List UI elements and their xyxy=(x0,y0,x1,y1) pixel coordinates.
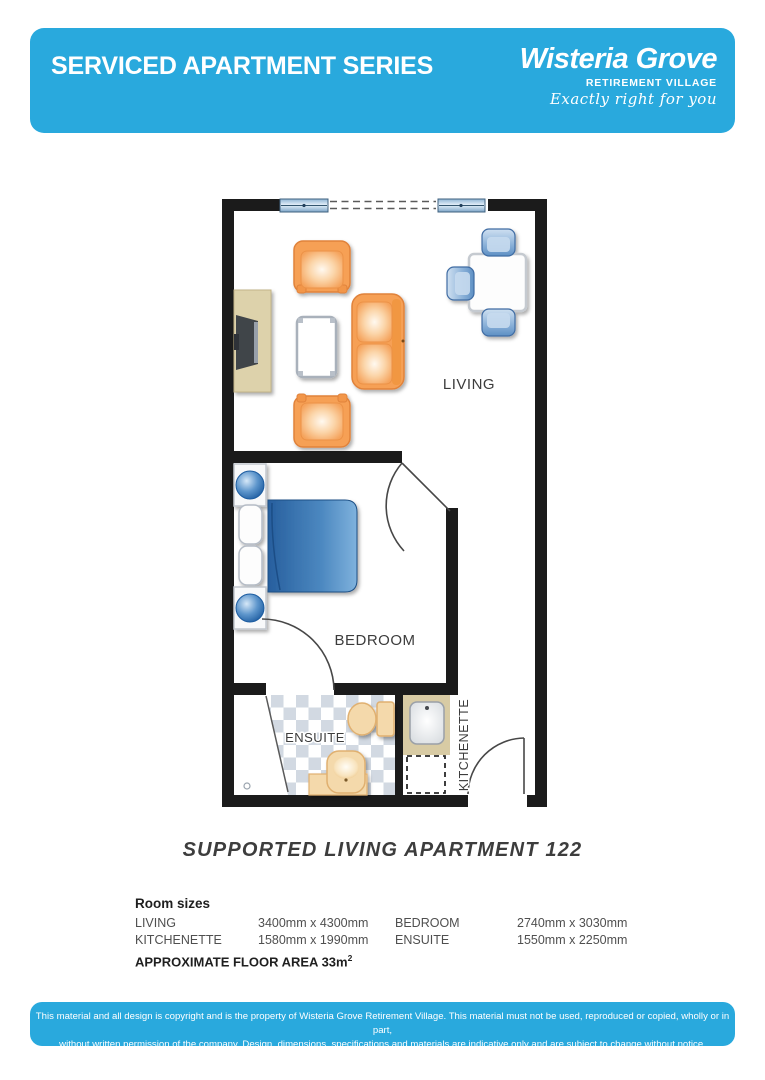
armchair-bottom xyxy=(294,394,350,447)
toilet xyxy=(348,702,394,736)
dining-chair-left xyxy=(447,267,474,300)
brochure-page: SERVICED APARTMENT SERIES Wisteria Grove… xyxy=(0,0,765,1080)
floor-area: APPROXIMATE FLOOR AREA 33m2 xyxy=(135,953,640,969)
room-label: KITCHENETTE xyxy=(135,934,258,947)
room-size: 1580mm x 1990mm xyxy=(258,934,395,947)
footer-disclaimer: This material and all design is copyrigh… xyxy=(30,1002,735,1046)
footer-line1: This material and all design is copyrigh… xyxy=(30,1010,735,1038)
window-left xyxy=(280,199,328,212)
window-right xyxy=(438,199,485,212)
room-label: BEDROOM xyxy=(395,917,517,930)
appliance-space xyxy=(407,756,445,793)
bedside-table-bottom xyxy=(234,587,266,629)
room-sizes-block: Room sizes LIVING 3400mm x 4300mm BEDROO… xyxy=(135,896,640,969)
dining-table xyxy=(469,254,526,311)
room-size: 1550mm x 2250mm xyxy=(517,934,640,947)
tv-unit xyxy=(234,290,271,392)
room-sizes-table: LIVING 3400mm x 4300mm BEDROOM 2740mm x … xyxy=(135,917,640,947)
room-sizes-heading: Room sizes xyxy=(135,896,640,911)
room-size: 3400mm x 4300mm xyxy=(258,917,395,930)
ensuite-label: ENSUITE xyxy=(285,730,345,745)
footer-line2: without written permission of the compan… xyxy=(30,1038,735,1052)
sofa xyxy=(352,294,405,389)
plan-title: SUPPORTED LIVING APARTMENT 122 xyxy=(0,839,765,862)
dining-chair-top xyxy=(482,229,515,256)
coffee-table xyxy=(297,317,336,377)
dining-chair-bottom xyxy=(482,309,515,336)
bed xyxy=(268,500,357,592)
living-label: LIVING xyxy=(443,376,495,393)
bedroom-label: BEDROOM xyxy=(334,632,415,649)
lamp xyxy=(236,471,264,499)
lamp xyxy=(236,594,264,622)
kitchenette-counter xyxy=(403,695,450,755)
sink-tap xyxy=(425,706,429,710)
bedside-table-top xyxy=(234,464,266,506)
armchair-top xyxy=(294,241,350,293)
room-label: ENSUITE xyxy=(395,934,517,947)
room-label: LIVING xyxy=(135,917,258,930)
kitchenette-label: KITCHENETTE xyxy=(457,699,471,791)
room-size: 2740mm x 3030mm xyxy=(517,917,640,930)
